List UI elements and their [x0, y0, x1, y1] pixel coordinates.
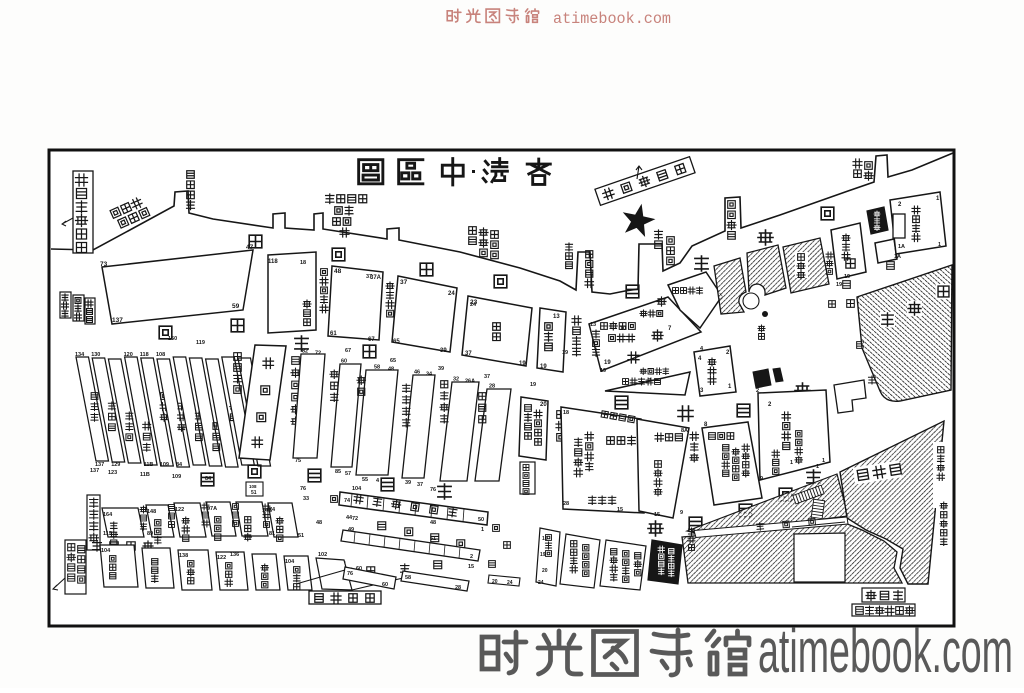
svg-text:85: 85 [335, 469, 341, 475]
svg-text:18: 18 [563, 410, 569, 416]
svg-text:1A: 1A [898, 244, 905, 250]
svg-text:44: 44 [346, 515, 353, 521]
svg-text:134: 134 [75, 352, 85, 358]
svg-text:20: 20 [542, 568, 548, 574]
svg-text:1A: 1A [894, 254, 901, 260]
svg-text:118: 118 [268, 259, 278, 265]
svg-text:14B: 14B [262, 508, 272, 514]
svg-text:24: 24 [507, 580, 513, 586]
svg-text:104: 104 [285, 559, 295, 565]
svg-text:7: 7 [648, 378, 651, 384]
svg-text:19: 19 [600, 368, 606, 374]
svg-text:19: 19 [844, 274, 850, 280]
svg-text:75: 75 [295, 458, 301, 464]
svg-text:15: 15 [654, 512, 660, 518]
svg-text:150: 150 [168, 336, 177, 342]
svg-text:89: 89 [147, 531, 153, 537]
svg-text:137: 137 [90, 468, 99, 474]
svg-text:1: 1 [938, 242, 941, 248]
svg-text:37: 37 [484, 374, 490, 380]
svg-text:8A: 8A [681, 428, 688, 434]
svg-text:13: 13 [553, 314, 560, 320]
svg-text:138: 138 [179, 553, 188, 559]
svg-text:24: 24 [448, 291, 455, 297]
svg-text:48: 48 [430, 520, 436, 526]
svg-text:57: 57 [345, 471, 351, 477]
svg-text:1: 1 [790, 460, 793, 466]
svg-text:67: 67 [345, 348, 351, 354]
svg-text:28: 28 [489, 384, 495, 390]
svg-text:15: 15 [617, 507, 623, 513]
svg-text:9: 9 [760, 476, 763, 482]
svg-text:109: 109 [160, 462, 169, 468]
svg-text:76: 76 [430, 487, 436, 493]
svg-text:122: 122 [175, 507, 184, 513]
svg-text:102: 102 [318, 552, 327, 558]
svg-text:55: 55 [362, 477, 368, 483]
svg-text:1: 1 [822, 458, 825, 464]
svg-text:108: 108 [156, 352, 165, 358]
svg-text:148: 148 [147, 509, 156, 515]
svg-text:34: 34 [426, 372, 433, 378]
svg-text:37: 37 [417, 482, 423, 488]
svg-text:atimebook.com: atimebook.com [758, 617, 1013, 686]
svg-text:104: 104 [352, 486, 362, 492]
svg-text:48: 48 [388, 367, 394, 373]
svg-text:28: 28 [563, 501, 569, 507]
svg-text:37: 37 [465, 351, 472, 357]
svg-text:10: 10 [620, 326, 626, 332]
svg-text:2: 2 [756, 388, 759, 394]
svg-text:104: 104 [101, 548, 111, 554]
svg-text:65: 65 [390, 358, 396, 364]
svg-text:59: 59 [232, 303, 240, 310]
svg-text:122: 122 [217, 555, 226, 561]
svg-text:50: 50 [478, 517, 484, 523]
svg-text:51: 51 [298, 533, 304, 539]
svg-text:28: 28 [455, 585, 461, 591]
svg-text:60: 60 [382, 582, 388, 588]
svg-text:84: 84 [176, 462, 183, 468]
svg-text:74: 74 [344, 498, 351, 504]
svg-text:48: 48 [316, 520, 322, 526]
svg-text:129: 129 [111, 462, 120, 468]
svg-text:39: 39 [405, 480, 411, 486]
svg-text:130: 130 [91, 352, 100, 358]
svg-text:11B: 11B [140, 472, 150, 478]
svg-text:60: 60 [341, 359, 347, 365]
svg-text:19: 19 [530, 382, 536, 388]
svg-text:20: 20 [492, 579, 498, 585]
svg-text:72: 72 [352, 516, 358, 522]
svg-text:97A: 97A [207, 506, 217, 512]
svg-text:1: 1 [481, 527, 484, 533]
svg-text:24: 24 [470, 302, 477, 308]
svg-text:19: 19 [540, 552, 546, 558]
svg-text:19: 19 [604, 360, 611, 366]
svg-text:65: 65 [393, 339, 400, 345]
svg-text:58: 58 [405, 575, 411, 581]
svg-text:119: 119 [196, 340, 205, 346]
svg-text:120: 120 [124, 352, 133, 358]
svg-text:72: 72 [315, 351, 321, 357]
svg-text:82: 82 [302, 349, 308, 355]
svg-text:9: 9 [680, 510, 683, 516]
svg-text:76: 76 [347, 571, 353, 577]
svg-text:19: 19 [519, 361, 526, 367]
svg-text:37: 37 [400, 279, 408, 286]
svg-text:19: 19 [540, 364, 547, 370]
svg-text:18: 18 [300, 260, 306, 266]
svg-text:136: 136 [230, 552, 239, 558]
svg-text:atimebook.com: atimebook.com [553, 10, 671, 28]
svg-text:24: 24 [538, 580, 544, 586]
svg-text:32: 32 [453, 377, 459, 383]
svg-text:81: 81 [269, 531, 275, 537]
svg-text:11B: 11B [144, 462, 154, 468]
svg-text:73: 73 [100, 261, 108, 268]
svg-text:84: 84 [205, 476, 212, 482]
svg-text:118: 118 [140, 352, 149, 358]
svg-text:26A: 26A [465, 379, 475, 385]
svg-text:109: 109 [172, 474, 181, 480]
svg-text:60: 60 [356, 566, 362, 572]
svg-text:19: 19 [562, 350, 568, 356]
svg-text:48: 48 [334, 268, 342, 275]
svg-text:13: 13 [590, 322, 596, 328]
svg-text:67: 67 [368, 337, 375, 343]
svg-text:123: 123 [108, 470, 117, 476]
svg-text:164: 164 [103, 512, 113, 518]
svg-text:2: 2 [470, 554, 473, 560]
svg-text:51: 51 [251, 490, 257, 496]
svg-text:61: 61 [330, 331, 337, 337]
svg-text:108: 108 [249, 484, 257, 489]
svg-text:33: 33 [303, 496, 309, 502]
svg-text:46: 46 [414, 370, 420, 376]
svg-text:39: 39 [440, 348, 447, 354]
svg-text:137: 137 [112, 317, 123, 324]
svg-text:15: 15 [468, 564, 474, 570]
svg-text:19: 19 [836, 282, 842, 288]
svg-text:58: 58 [374, 365, 380, 371]
svg-text:76: 76 [300, 486, 306, 492]
svg-text:39: 39 [438, 366, 444, 372]
svg-text:20: 20 [540, 402, 547, 408]
svg-text:37: 37 [366, 274, 372, 280]
svg-text:47: 47 [246, 244, 254, 251]
svg-text:1: 1 [816, 464, 819, 470]
